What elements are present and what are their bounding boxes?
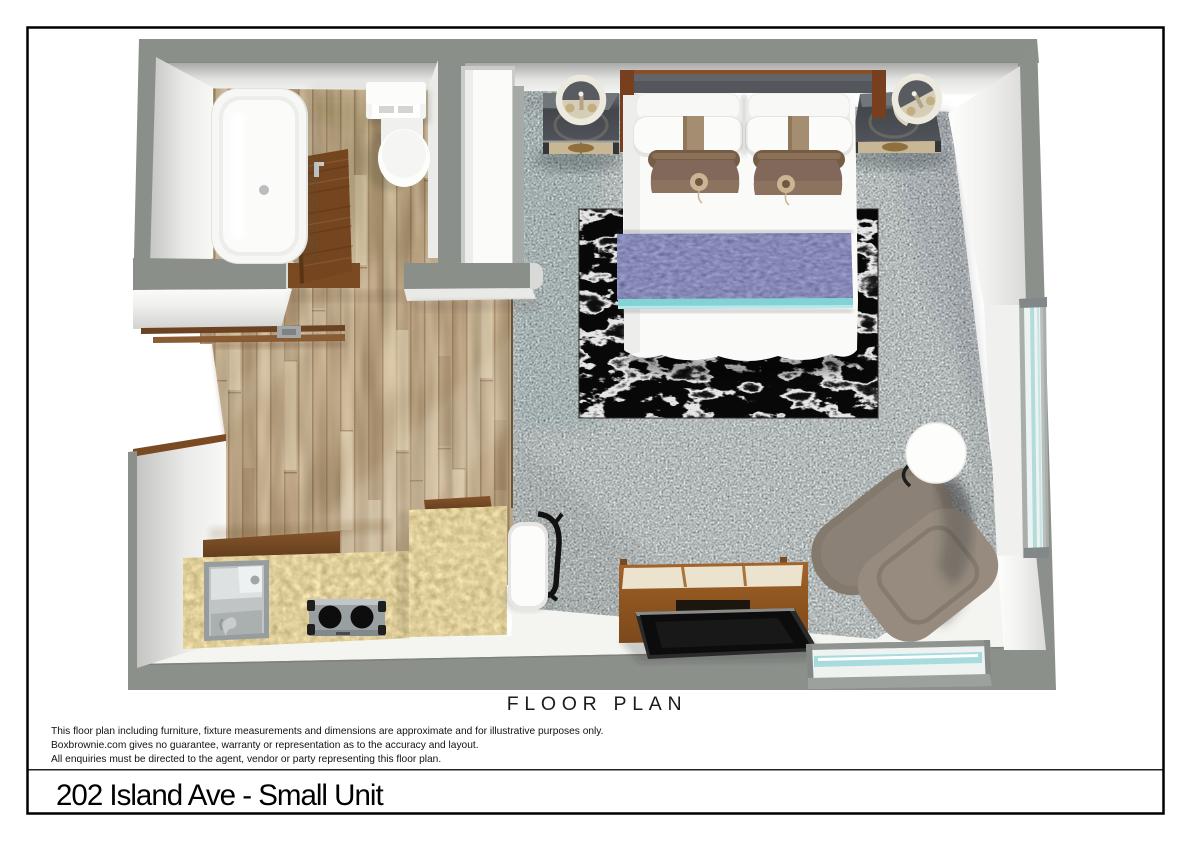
svg-text:This floor plan including furn: This floor plan including furniture, fix… bbox=[51, 726, 603, 737]
svg-text:Boxbrownie.com gives no guaran: Boxbrownie.com gives no guarantee, warra… bbox=[51, 740, 479, 751]
svg-text:FLOOR PLAN: FLOOR PLAN bbox=[507, 693, 688, 715]
svg-text:202 Island Ave - Small Unit: 202 Island Ave - Small Unit bbox=[56, 779, 383, 812]
svg-text:All enquiries must be directed: All enquiries must be directed to the ag… bbox=[51, 754, 441, 765]
